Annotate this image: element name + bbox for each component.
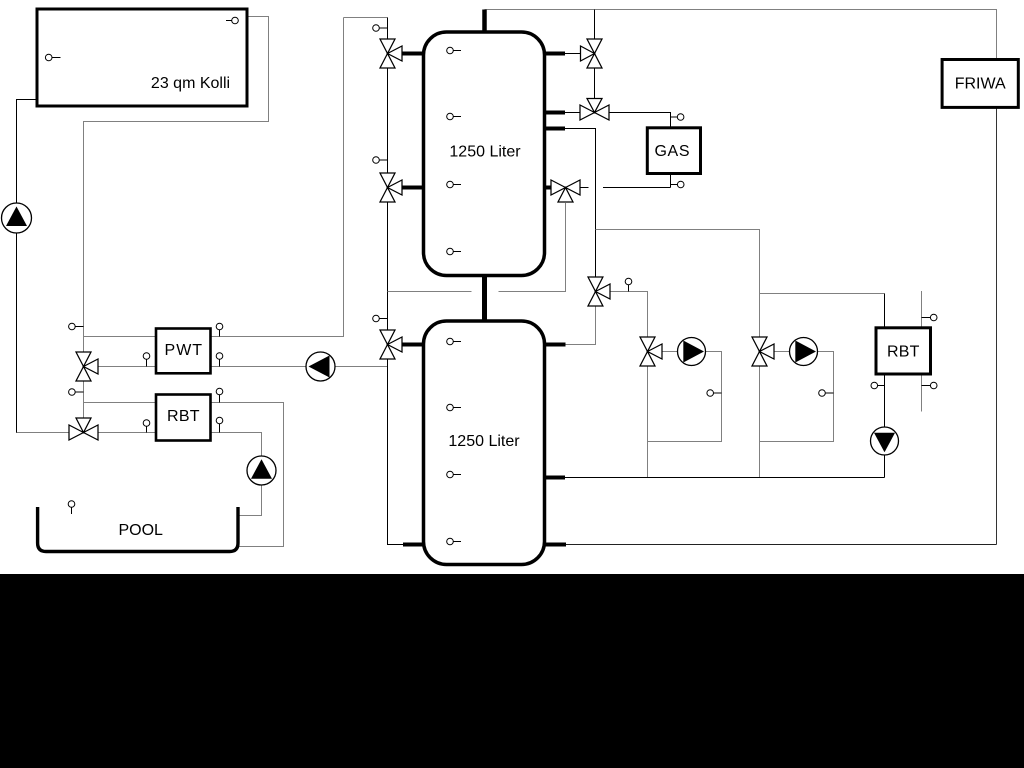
svg-text:1250 Liter: 1250 Liter <box>448 433 520 450</box>
svg-text:POOL: POOL <box>118 522 163 539</box>
svg-text:GAS: GAS <box>655 143 690 160</box>
svg-text:RBT: RBT <box>887 343 920 360</box>
svg-text:FRIWA: FRIWA <box>955 76 1006 93</box>
svg-text:1250 Liter: 1250 Liter <box>449 143 521 160</box>
svg-text:RBT: RBT <box>167 408 200 425</box>
svg-text:PWT: PWT <box>165 342 203 359</box>
svg-text:23 qm Kolli: 23 qm Kolli <box>151 75 230 92</box>
